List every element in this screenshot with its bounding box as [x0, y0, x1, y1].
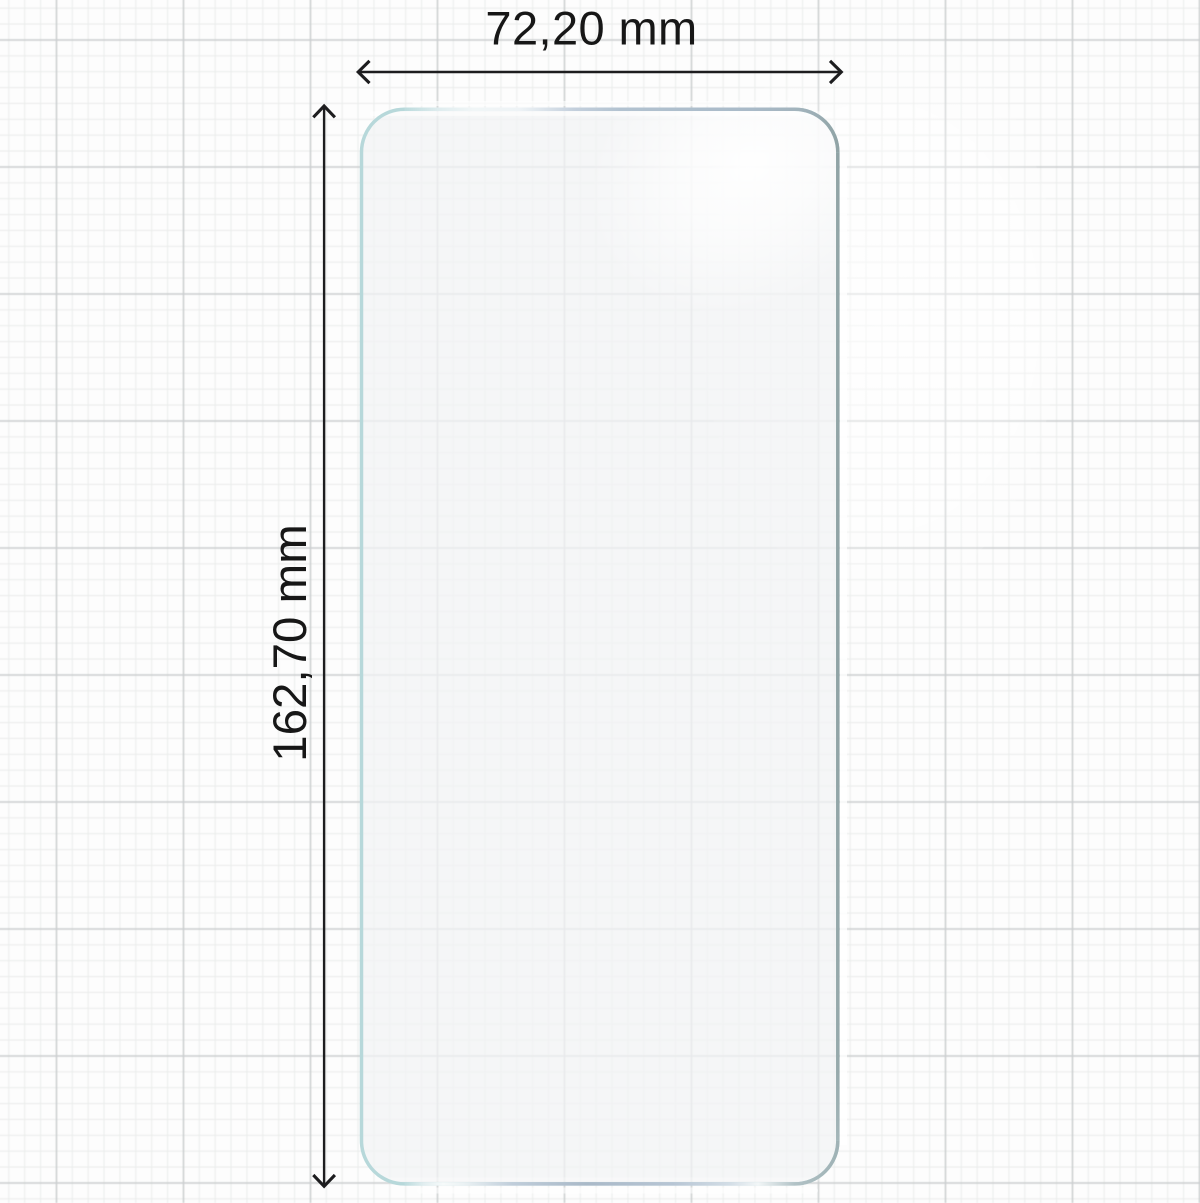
svg-text:72,20 mm: 72,20 mm [485, 2, 697, 55]
svg-text:162,70 mm: 162,70 mm [264, 524, 317, 762]
